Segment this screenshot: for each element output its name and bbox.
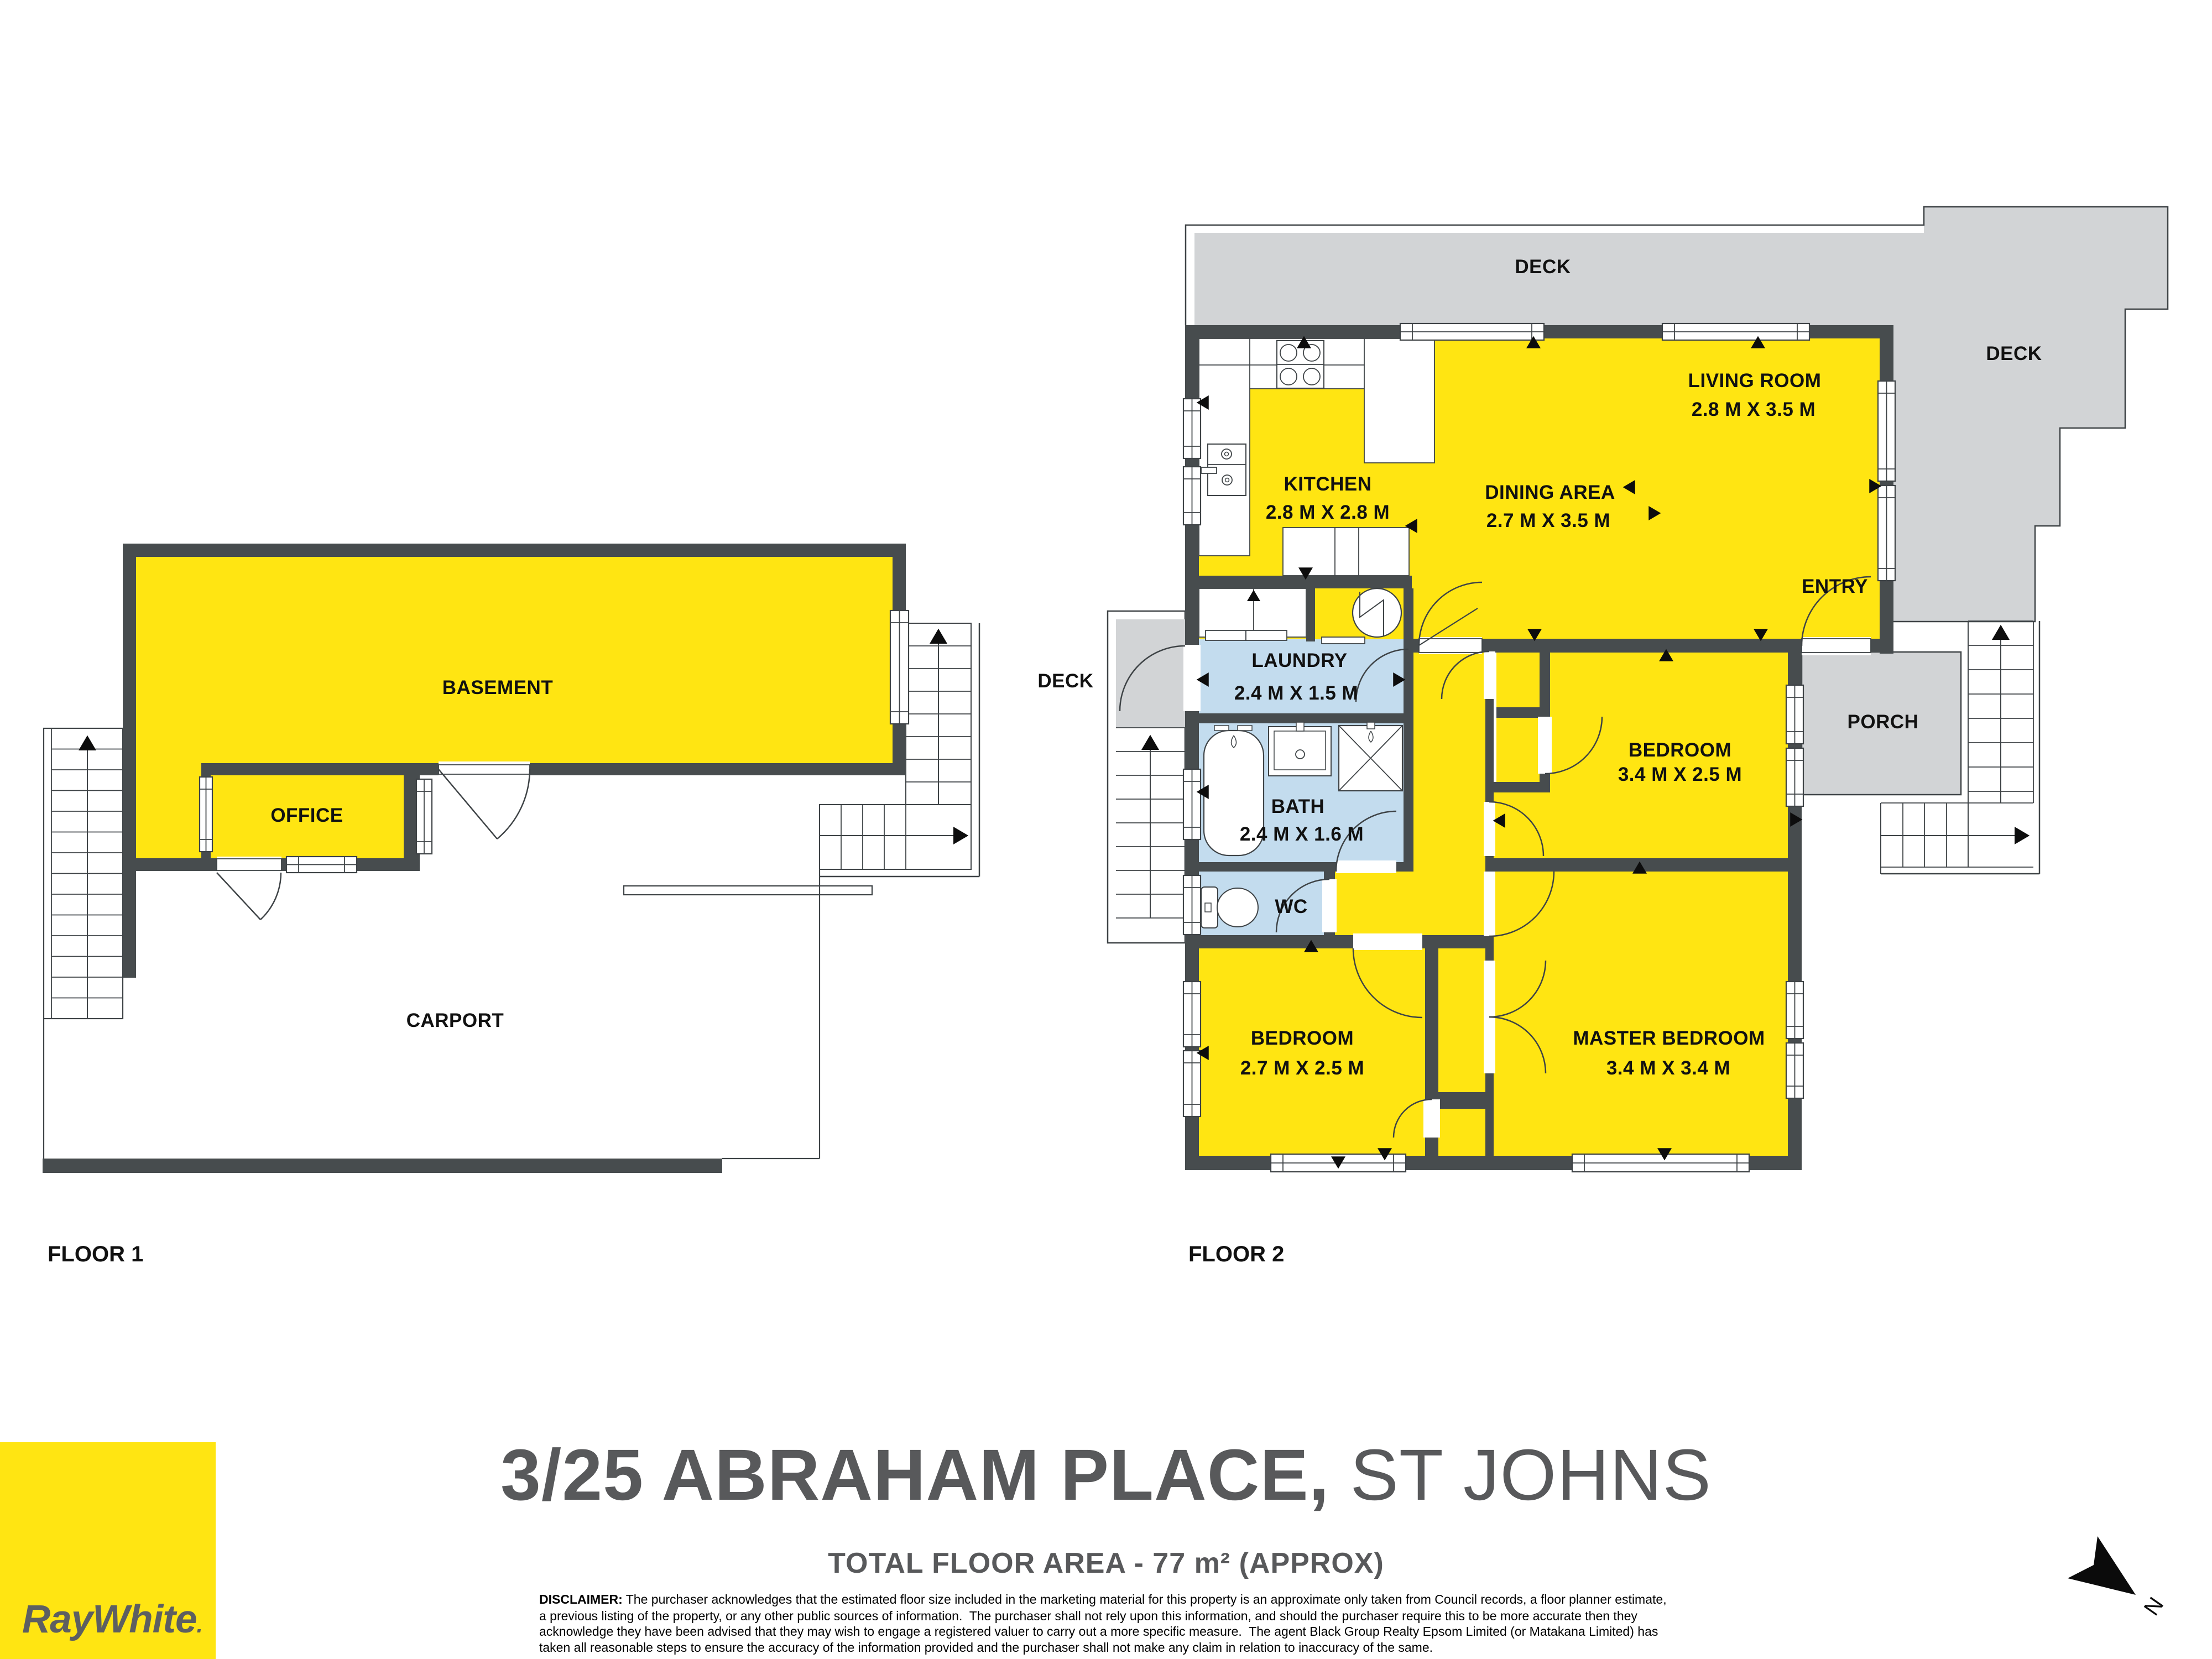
- svg-text:WC: WC: [1275, 896, 1307, 917]
- svg-text:a previous listing of the prop: a previous listing of the property, or a…: [539, 1609, 1637, 1623]
- svg-text:LIVING ROOM: LIVING ROOM: [1688, 370, 1822, 392]
- svg-text:BASEMENT: BASEMENT: [442, 677, 553, 698]
- svg-text:CARPORT: CARPORT: [406, 1010, 504, 1031]
- svg-text:PORCH: PORCH: [1848, 711, 1919, 733]
- svg-text:BEDROOM: BEDROOM: [1251, 1027, 1354, 1049]
- svg-text:RayWhite.: RayWhite.: [22, 1598, 202, 1641]
- svg-text:2.4 M X 1.6 M: 2.4 M X 1.6 M: [1240, 823, 1364, 845]
- svg-text:FLOOR 1: FLOOR 1: [48, 1242, 143, 1266]
- svg-text:MASTER BEDROOM: MASTER BEDROOM: [1573, 1027, 1765, 1049]
- svg-text:acknowledge they have been adv: acknowledge they have been advised that …: [539, 1624, 1658, 1639]
- svg-text:DECK: DECK: [1986, 343, 2042, 364]
- svg-text:3/25 ABRAHAM PLACE, ST JOHNS: 3/25 ABRAHAM PLACE, ST JOHNS: [500, 1434, 1712, 1515]
- svg-text:KITCHEN: KITCHEN: [1284, 473, 1371, 495]
- svg-text:taken all reasonable steps to: taken all reasonable steps to ensure the…: [539, 1640, 1433, 1655]
- svg-text:LAUNDRY: LAUNDRY: [1251, 650, 1347, 671]
- svg-text:2.4 M X 1.5 M: 2.4 M X 1.5 M: [1234, 682, 1358, 704]
- svg-text:2.8 M X 3.5 M: 2.8 M X 3.5 M: [1692, 399, 1815, 420]
- svg-text:OFFICE: OFFICE: [270, 805, 343, 826]
- svg-text:2.7 M X 2.5 M: 2.7 M X 2.5 M: [1240, 1057, 1364, 1079]
- svg-text:ENTRY: ENTRY: [1802, 576, 1868, 597]
- svg-text:DINING AREA: DINING AREA: [1485, 482, 1615, 503]
- svg-text:2.7 M X 3.5 M: 2.7 M X 3.5 M: [1486, 510, 1610, 531]
- svg-text:TOTAL FLOOR AREA - 77 m² (APPR: TOTAL FLOOR AREA - 77 m² (APPROX): [828, 1547, 1384, 1579]
- svg-text:FLOOR 2: FLOOR 2: [1188, 1242, 1284, 1266]
- svg-text:BATH: BATH: [1271, 796, 1325, 817]
- svg-text:DECK: DECK: [1037, 670, 1093, 692]
- svg-text:3.4 M X 3.4 M: 3.4 M X 3.4 M: [1606, 1057, 1730, 1079]
- svg-text:3.4 M X 2.5 M: 3.4 M X 2.5 M: [1618, 764, 1742, 785]
- svg-text:2.8 M X 2.8 M: 2.8 M X 2.8 M: [1266, 502, 1390, 523]
- svg-text:BEDROOM: BEDROOM: [1629, 739, 1731, 761]
- svg-text:DECK: DECK: [1515, 256, 1571, 278]
- svg-text:DISCLAIMER: The purchaser ackn: DISCLAIMER: The purchaser acknowledges t…: [539, 1592, 1667, 1606]
